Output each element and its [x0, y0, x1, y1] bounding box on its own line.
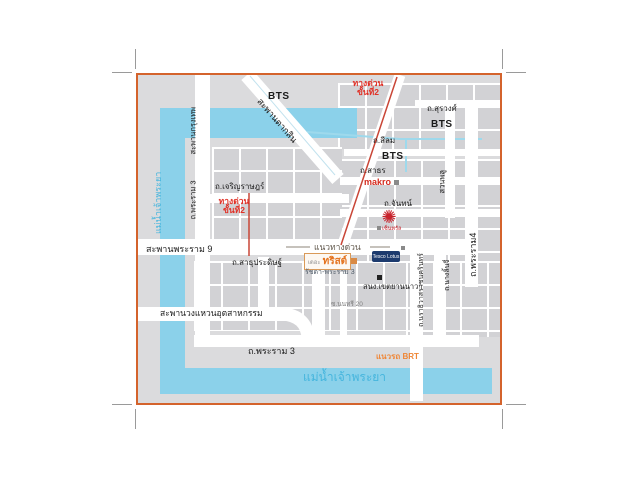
makro-text: makro: [364, 177, 391, 187]
trust-marker-icon: [351, 258, 357, 264]
surawong-label: ถ.สุรวงศ์: [427, 105, 457, 114]
brt-line-label: แนวรถ BRT: [376, 353, 419, 362]
sathupradit-label: ถ.สาธุประดิษฐ์: [232, 259, 282, 268]
tesco-lotus-landmark: Tesco Lotus: [372, 251, 400, 262]
the-trust-landmark: เดอะ ทริสต์: [304, 253, 351, 270]
makro-marker-icon: [394, 180, 399, 185]
chaophraya-bottom-label: แม่น้ำเจ้าพระยา: [303, 371, 386, 384]
trust-sub-label: รัชดา-พระราม 3: [305, 269, 355, 277]
crop-mark: [135, 409, 136, 429]
rama3-left-label: ถ.พระราม 3: [190, 180, 198, 219]
expressway-line2: ขั้นที่2: [357, 87, 379, 97]
silom-label: ถ.สีลม: [373, 137, 395, 146]
yannawa-marker-icon: [377, 275, 382, 280]
expressway-line2: ขั้นที่2: [223, 205, 245, 215]
crop-mark: [112, 72, 132, 73]
crop-mark: [502, 409, 503, 429]
rama4-label: ถ.พระราม4: [469, 233, 478, 277]
trust-prefix: เดอะ: [308, 257, 321, 267]
chaophraya-left-label: แม่น้ำเจ้าพระยา: [154, 172, 163, 234]
central-marker-icon: [377, 226, 381, 230]
suanphlu-label: สวนพลู: [439, 170, 447, 193]
bts-surawong-label: BTS: [431, 119, 453, 130]
central-text: เซ็นทรัล: [382, 226, 401, 232]
rama3-bottom-label: ถ.พระราม 3: [248, 347, 295, 357]
trust-name: ทริสต์: [323, 254, 348, 269]
soi-nonsi20-label: ซ.นนทรี 20: [331, 301, 363, 308]
crop-mark: [506, 404, 526, 405]
location-map: สะพานกรุงเทพ ถ.พระราม 3 แม่น้ำเจ้าพระยา …: [136, 73, 502, 405]
central-starburst-icon: ✺: [376, 209, 402, 225]
crop-mark: [502, 49, 503, 69]
page: { "colors": { "border": "#d4632c", "rive…: [0, 0, 640, 480]
bts-taksin-label: BTS: [268, 91, 290, 102]
industrial-ring-label: สะพานวงแหวนอุตสาหกรรม: [160, 309, 263, 318]
krungthep-bridge-label: สะพานกรุงเทพ: [190, 107, 198, 155]
lotus-marker-icon: [401, 246, 405, 250]
crop-mark: [506, 72, 526, 73]
yannawa-office-label: สนง.เขตยานนาวา: [363, 283, 423, 291]
makro-label: makro: [364, 178, 399, 188]
sathorn-label: ถ.สาธร: [360, 167, 386, 176]
nanglinchi-label: ถ.นางลิ้นจี่: [444, 260, 451, 292]
central-plaza-landmark: ✺ เซ็นทรัล: [376, 209, 402, 233]
rama9-bridge-label: สะพานพระราม 9: [146, 245, 212, 255]
crop-mark: [135, 49, 136, 69]
expressway-stage2-top-label: ทางด่วน ขั้นที่2: [345, 79, 391, 98]
expressway-alignment-label: แนวทางด่วน: [314, 243, 361, 252]
charoenrat-label: ถ.เจริญราษฎร์: [215, 183, 264, 192]
central-label: เซ็นทรัล: [376, 225, 402, 233]
crop-mark: [112, 404, 132, 405]
bts-silom-label: BTS: [382, 151, 404, 162]
expressway-stage2-left-label: ทางด่วน ขั้นที่2: [216, 197, 252, 216]
